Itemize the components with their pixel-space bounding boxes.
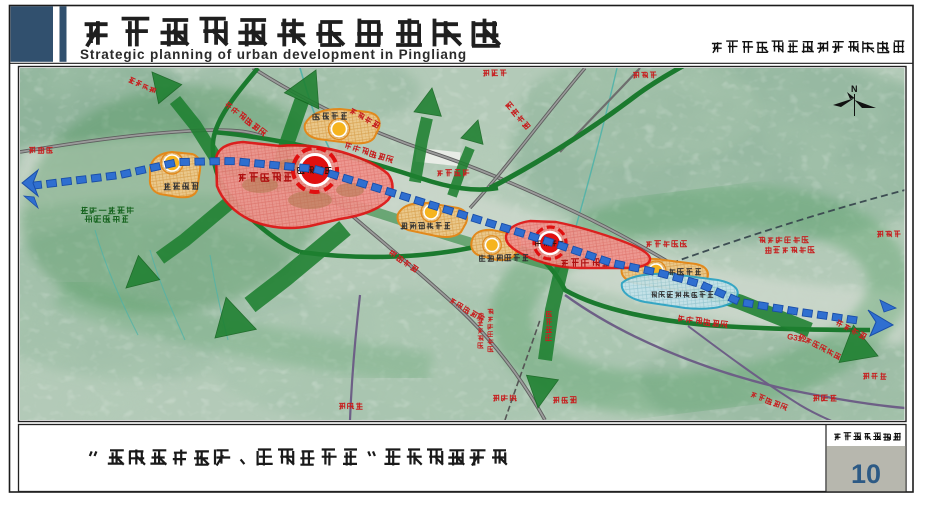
svg-text:10: 10 xyxy=(851,459,881,489)
svg-text:Strategic planning of urban de: Strategic planning of urban development … xyxy=(80,47,467,62)
svg-text:N: N xyxy=(851,84,858,94)
